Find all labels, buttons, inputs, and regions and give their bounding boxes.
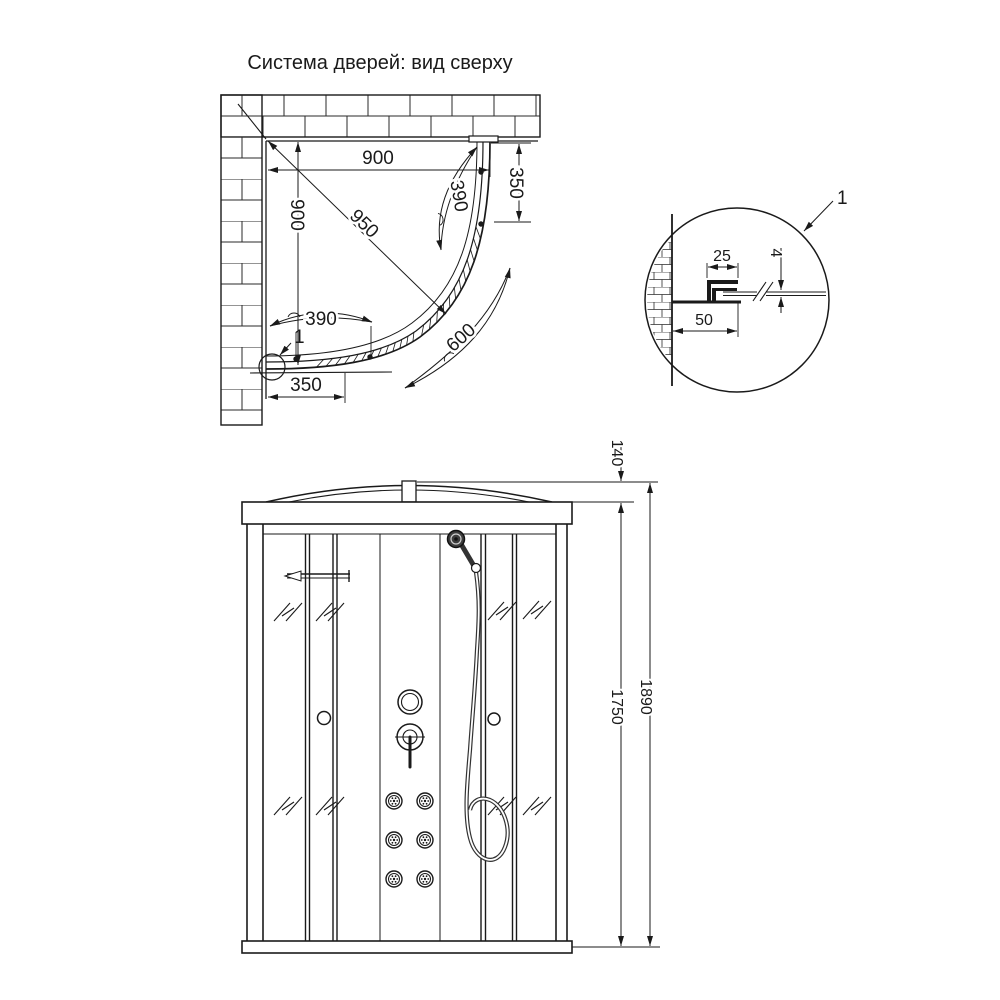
door-handle-right [488, 713, 500, 725]
door-roller-dot [367, 354, 372, 359]
dim-cabin-height: 1750 [608, 503, 625, 946]
wall-profile-cap [469, 136, 498, 142]
door-handle-left [318, 712, 331, 725]
dim-glass-thickness: 4 [767, 248, 784, 313]
detail-wall-bricks [642, 205, 672, 395]
dim-text-door-arc-left: 390 [305, 309, 337, 330]
frame-side-bars [247, 524, 567, 941]
shower-cabin-drawing: Система дверей: вид сверху 900 [0, 0, 1000, 1000]
dim-total-height: 1890 [637, 483, 654, 946]
hand-shower [448, 531, 508, 860]
dim-text-diagonal: 950 [345, 205, 382, 242]
dim-text-total-height: 1890 [637, 679, 654, 715]
drawing-title: Система дверей: вид сверху [247, 52, 512, 74]
massage-jet [386, 871, 402, 887]
dim-text-roof-height: 140 [608, 440, 625, 467]
massage-jet [386, 832, 402, 848]
door-roller-dot [478, 221, 483, 226]
dim-text-profile-width: 25 [713, 248, 731, 265]
dim-text-glass-thickness: 4 [767, 249, 784, 258]
wall-top-bricks [221, 95, 540, 137]
detail-callout: 1 [804, 188, 848, 231]
massage-jet [417, 871, 433, 887]
hose-holder [472, 564, 481, 573]
roof-knob [402, 481, 416, 502]
dim-text-cabin-height: 1750 [608, 689, 625, 725]
massage-jets [386, 793, 433, 887]
dim-fixed-panel-right: 350 [491, 143, 531, 222]
dim-door-arc-left: 390 [270, 309, 372, 358]
dim-text-door-arc-right: 390 [445, 179, 471, 214]
towel-rail-end [285, 571, 301, 581]
dim-door-arc-right: 390 [438, 147, 477, 250]
dim-text-inner-width: 900 [362, 148, 394, 169]
dim-profile-width: 25 [707, 248, 738, 278]
mixer-controls [395, 690, 425, 767]
dim-text-wall-clearance: 50 [695, 312, 713, 329]
detail-callout-label: 1 [837, 188, 848, 209]
dim-text-fixed-panel-right: 350 [505, 167, 526, 199]
glass-reflection-marks [274, 601, 551, 815]
dim-roof-height: 140 [608, 440, 625, 481]
massage-jet [417, 793, 433, 809]
plan-view: 900 900 950 390 350 [221, 95, 540, 425]
shower-handle [461, 544, 474, 566]
detail-marker-label: 1 [294, 327, 305, 348]
wall-left-bricks [221, 95, 262, 425]
frame-base-bar [242, 941, 572, 953]
front-view: 140 1750 1890 [242, 440, 660, 953]
detail-glass [723, 282, 826, 301]
massage-jet [417, 832, 433, 848]
frame-top-bar [242, 502, 572, 524]
tray-edge-line [250, 372, 392, 373]
dim-text-center-arc: 600 [443, 320, 481, 357]
massage-jet [386, 793, 402, 809]
technical-drawing-page: Система дверей: вид сверху 900 [0, 0, 1000, 1000]
dim-text-fixed-panel-left: 350 [290, 375, 322, 396]
arc-length-symbol [438, 213, 444, 226]
detail-view: 25 50 4 1 [642, 188, 848, 395]
dim-text-inner-depth: 900 [286, 199, 307, 231]
towel-rail [285, 570, 350, 582]
dim-wall-clearance: 50 [673, 303, 738, 337]
detail-wall-profile [707, 280, 738, 302]
